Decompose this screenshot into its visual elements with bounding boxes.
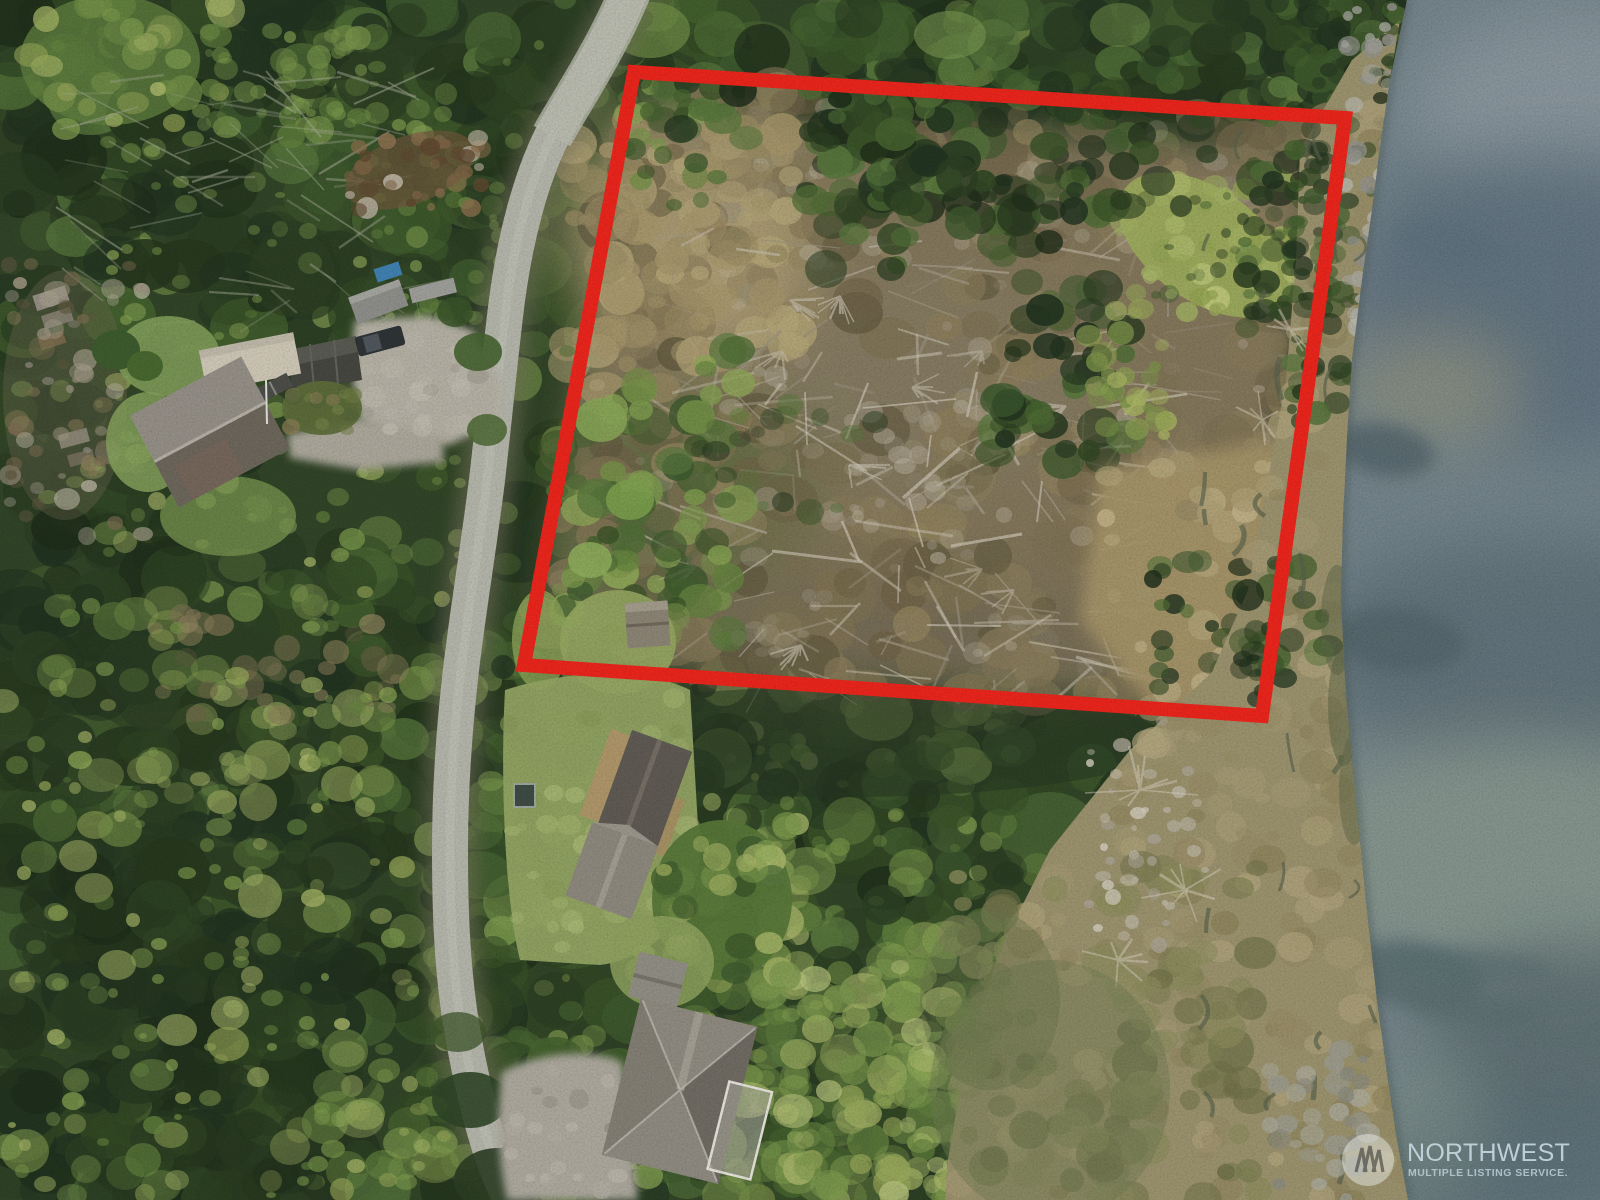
svg-text:MULTIPLE LISTING SERVICE.: MULTIPLE LISTING SERVICE. [1408, 1167, 1568, 1179]
svg-text:NORTHWEST: NORTHWEST [1407, 1139, 1571, 1167]
